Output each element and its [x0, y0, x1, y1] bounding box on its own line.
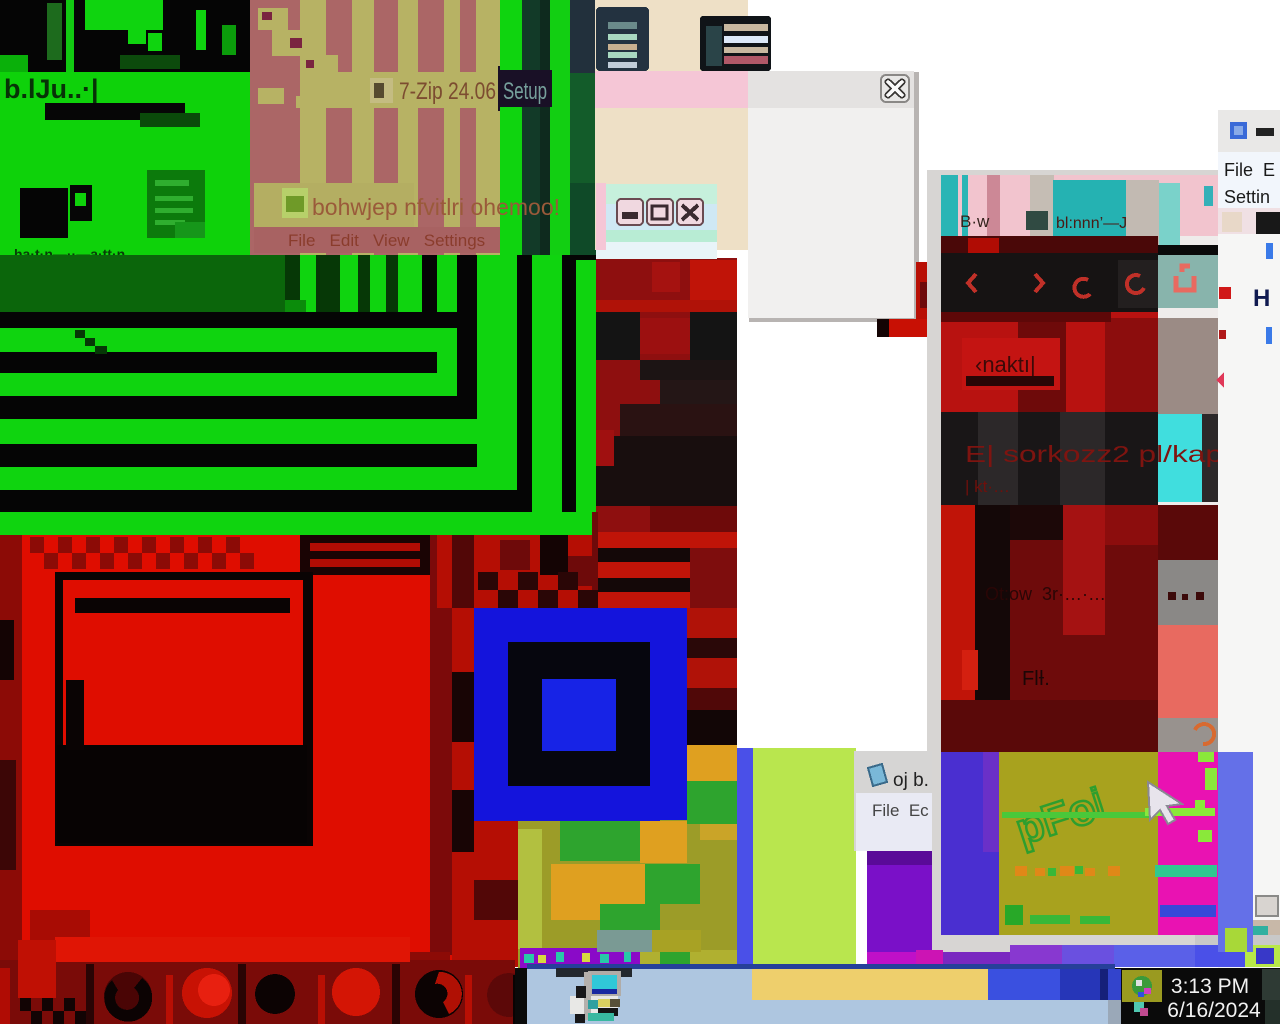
- svg-text:File E: File E: [1224, 160, 1275, 180]
- svg-text:File Ec: File Ec: [872, 801, 929, 820]
- svg-text:‹naktı|: ‹naktı|: [975, 352, 1036, 377]
- svg-text:H: H: [1253, 285, 1270, 312]
- svg-text:6/16/2024: 6/16/2024: [1167, 999, 1261, 1022]
- svg-text:B·w: B·w: [960, 212, 990, 231]
- svg-text:7-Zip 24.06: 7-Zip 24.06: [399, 78, 496, 105]
- svg-text:bl:nnn’—J: bl:nnn’—J: [1056, 215, 1127, 232]
- svg-text:FlƗ.: FlƗ.: [1022, 668, 1050, 690]
- svg-text:Ot:ow 3r·…·…: Ot:ow 3r·…·…: [985, 584, 1106, 604]
- svg-text:b.lJu..·|: b.lJu..·|: [4, 74, 99, 104]
- svg-text:File Edit View Settings: File Edit View Settings ?: [288, 231, 509, 250]
- svg-text:Setup: Setup: [503, 78, 547, 105]
- svg-text:E| sorkozz2 pl/kap: E| sorkozz2 pl/kap: [965, 441, 1223, 467]
- svg-text:bohwjep nfvitlri ohemoo!: bohwjep nfvitlri ohemoo!: [312, 194, 560, 220]
- svg-text:oj b.: oj b.: [893, 770, 929, 791]
- svg-text:3:13 PM: 3:13 PM: [1171, 975, 1249, 998]
- svg-text:| kt·…: | kt·…: [965, 477, 1010, 496]
- svg-text:Settin: Settin: [1224, 187, 1270, 207]
